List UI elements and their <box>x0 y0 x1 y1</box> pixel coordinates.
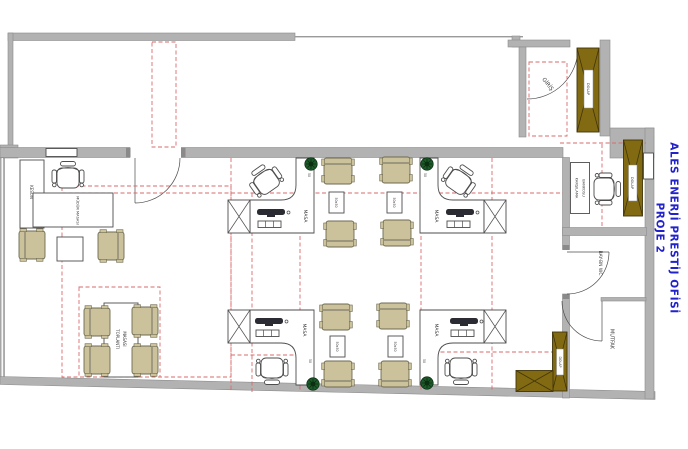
entrance-top-wall <box>508 40 570 47</box>
cabinet-entrance: DOLAP <box>577 48 599 132</box>
waiting-chair <box>320 304 353 330</box>
reception-area: KARŞILAMA BANKOSU <box>571 163 621 214</box>
meeting-chair <box>132 305 158 338</box>
label-dolap-kitchen: DOLAP <box>558 357 562 368</box>
label-mudur-masasi: MÜDÜR MASASI <box>76 196 81 224</box>
label-masa-4: MASA <box>433 324 439 338</box>
guest-chair <box>19 229 45 262</box>
door-jamb <box>181 148 186 158</box>
dim-label: 50 <box>307 173 311 177</box>
entrance-door-arc <box>527 48 578 99</box>
guest-chair <box>98 230 124 263</box>
waiting-chair <box>380 157 413 183</box>
desk-lower-left: MASA 50 <box>228 310 314 385</box>
label-masa-2: MASA <box>433 210 439 224</box>
project-title-line2: PROJE 2 <box>654 203 666 254</box>
doors <box>135 48 609 341</box>
label-mutfak: MUTFAK <box>609 329 615 350</box>
floor-plan-page: DOLAP DOLAP DOLAP KESON MÜDÜR MASASI TOP… <box>0 0 688 449</box>
label-sehpa-dim: 50x50 <box>392 198 396 208</box>
right-wall-niche <box>644 153 654 179</box>
office-door-arc <box>135 158 180 203</box>
plant-icon <box>421 158 433 170</box>
desk-keson <box>228 310 250 343</box>
cabinet-kitchen-vertical: DOLAP <box>553 332 568 391</box>
meeting-area: TOPLANTI MASASI <box>84 303 158 377</box>
desk-chair <box>445 358 477 385</box>
label-karsilama-1: KARŞILAMA <box>575 178 579 199</box>
project-title-line1: ALES ENERJİ PRESTİJ OFİSİ <box>668 142 682 314</box>
waiting-chair <box>381 220 414 246</box>
label-masa-1: MASA <box>302 210 308 224</box>
label-giris: GİRİŞ <box>540 76 555 92</box>
dim-label: 50 <box>308 359 312 363</box>
guest-table <box>57 237 83 261</box>
top-wall <box>8 33 295 41</box>
label-dolap-reception: DOLAP <box>630 177 634 190</box>
meeting-chair <box>132 344 158 377</box>
wc-kitchen-wall <box>601 298 646 302</box>
plant-icon <box>305 158 317 170</box>
wall-niche <box>46 149 77 157</box>
desk-chair <box>256 358 288 385</box>
label-toplanti-2: MASASI <box>122 331 127 346</box>
reception-chair <box>594 173 621 205</box>
desk-keson <box>484 310 506 343</box>
dim-label: 50 <box>422 359 426 363</box>
door-opening <box>130 147 181 158</box>
left-wall-upper <box>8 33 13 148</box>
corridor-wall <box>0 148 563 158</box>
dim-label: 50 <box>423 173 427 177</box>
waiting-area-lower: 50x50 50x50 <box>320 303 412 387</box>
waiting-chair <box>377 303 410 329</box>
top-edge-line <box>295 36 523 37</box>
entrance-right-wall <box>600 40 610 136</box>
manager-chair <box>52 162 84 189</box>
wc-door-jamb <box>563 294 570 299</box>
meeting-chair <box>84 306 110 339</box>
label-sehpa-dim: 50x50 <box>335 342 339 352</box>
cabinet-reception: DOLAP <box>624 140 643 216</box>
door-jamb <box>126 148 131 158</box>
desk-keson <box>228 200 250 233</box>
reception-wc-wall <box>563 228 647 236</box>
waiting-chair <box>324 221 357 247</box>
plant-icon <box>307 378 319 390</box>
label-sehpa-dim: 50x50 <box>393 342 397 352</box>
plant-icon <box>421 377 433 389</box>
manager-area: KESON MÜDÜR MASASI <box>19 160 124 262</box>
waiting-area-upper: 50x50 50x50 <box>322 157 414 247</box>
waiting-chair <box>322 361 355 387</box>
project-title: ALES ENERJİ PRESTİJ OFİSİ PROJE 2 <box>654 142 682 314</box>
label-toplanti-1: TOPLANTI <box>115 328 120 349</box>
waiting-chair <box>379 361 412 387</box>
left-wall-core <box>2 158 3 380</box>
desk-keson <box>484 200 506 233</box>
wc-door-jamb <box>563 245 570 250</box>
cabinet-office-corner <box>516 371 553 392</box>
label-masa-3: MASA <box>301 324 307 338</box>
label-karsilama-2: BANKOSU <box>582 179 586 197</box>
floor-plan-svg: DOLAP DOLAP DOLAP KESON MÜDÜR MASASI TOP… <box>0 0 688 449</box>
label-sehpa-dim: 50x50 <box>334 198 338 208</box>
label-dolap-entrance: DOLAP <box>586 83 590 96</box>
meeting-chair <box>84 344 110 377</box>
manager-desk <box>33 193 113 227</box>
label-wc: BAY-BN WC <box>597 251 603 276</box>
desk-lower-right: MASA 50 <box>420 310 506 385</box>
desk-upper-right: MASA 50 <box>420 158 506 233</box>
waiting-chair <box>322 158 355 184</box>
desk-upper-left: MASA 50 <box>228 158 314 233</box>
entrance-column <box>519 47 526 137</box>
